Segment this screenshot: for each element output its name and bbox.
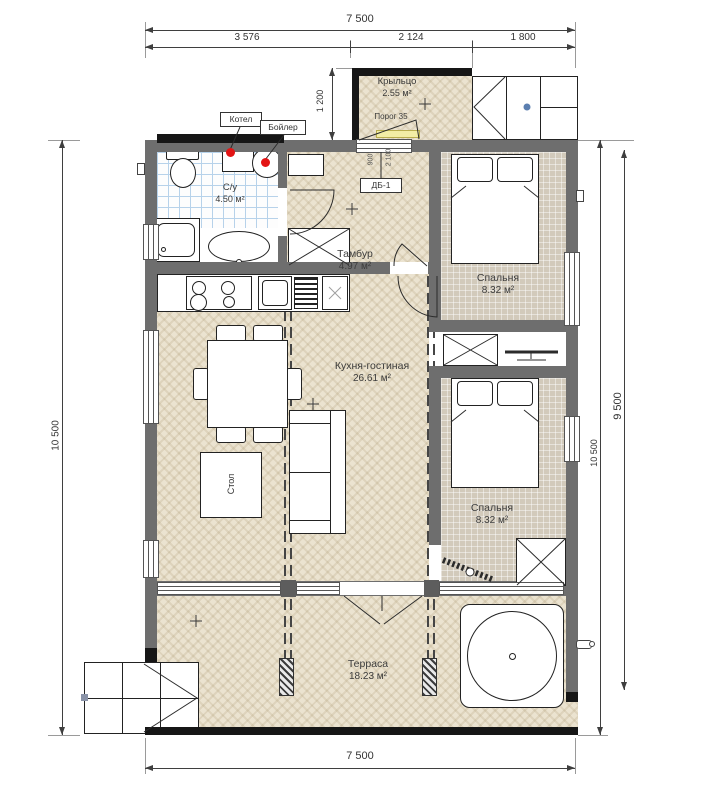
niche-wardrobe (443, 334, 498, 366)
dining-chair (253, 426, 283, 443)
room-name: Тамбур (337, 248, 373, 260)
wall-bath-vestibule (278, 236, 287, 262)
dimension-line-left (62, 140, 63, 735)
shower-drain (161, 247, 166, 252)
dimension-tick (472, 41, 473, 53)
window (564, 252, 580, 326)
hot-tub-jet (509, 653, 516, 660)
wall-post (281, 580, 296, 597)
extension-line (578, 735, 608, 736)
bathtub-oval (208, 231, 270, 262)
door-opening-bedroom2 (429, 545, 441, 581)
stove-burner (190, 294, 207, 311)
floor-plan: Крыльцо 2.55 м² Порог 35 С/у 4.50 м² Там… (0, 0, 703, 794)
entry-door-opening (356, 139, 412, 153)
room-name: С/у (223, 182, 237, 193)
dimension-line-right-inner (600, 140, 601, 735)
wall-vent (137, 163, 145, 175)
porch-stairs (472, 76, 578, 140)
wall-center (429, 378, 441, 545)
dim-label-left: 10 500 (51, 396, 62, 476)
room-label-vestibule: Тамбур 4.97 м² (318, 248, 392, 274)
dim-label-porch-depth: 1 200 (315, 61, 325, 141)
room-name: Крыльцо (378, 76, 417, 87)
room-name: Спальня (471, 502, 513, 514)
terrace-column (279, 658, 294, 696)
room-name: Терраса (348, 658, 388, 670)
room-label-bathroom: С/у 4.50 м² (195, 182, 265, 205)
dim-label-right-outer: 9 500 (612, 366, 624, 446)
extension-line (336, 68, 352, 69)
dimension-line-right-outer (624, 150, 625, 690)
sink-drainer (294, 277, 318, 309)
bed-pillow (457, 381, 493, 406)
dining-chair (216, 426, 246, 443)
wall-band-bathroom (157, 134, 284, 143)
terrace-stairs-mid-line (85, 698, 198, 699)
terrace-glazing (296, 582, 340, 595)
boiler-point (226, 148, 235, 157)
door-tag: ДБ-1 (360, 178, 402, 193)
hot-tub-faucet (576, 640, 592, 649)
wall-vent (576, 190, 584, 202)
room-area: 4.97 м² (318, 261, 392, 274)
toilet-bowl (170, 158, 196, 188)
dim-label-top-total: 7 500 (330, 13, 390, 25)
dim-label-segment-3: 1 800 (493, 32, 553, 43)
bed-pillow (497, 381, 533, 406)
room-label-terrace: Терраса 18.23 м² (328, 658, 408, 684)
porch-stairs-mid-line (540, 107, 578, 108)
room-name: Спальня (477, 272, 519, 284)
room-label-bedroom-top: Спальня 8.32 м² (458, 272, 538, 298)
water-heater-point (261, 158, 270, 167)
window (564, 416, 580, 462)
room-label-kitchen-living: Кухня-гостиная 26.61 м² (322, 360, 422, 386)
room-area: 8.32 м² (458, 285, 538, 298)
dim-label-right-inner: 10 500 (589, 413, 599, 493)
terrace-glazing (157, 582, 281, 595)
wall-center (429, 152, 441, 320)
dining-chair (286, 368, 302, 400)
vestibule-cabinet (288, 154, 324, 176)
terrace-door-opening (340, 582, 424, 595)
wall-niche-top (429, 320, 578, 332)
dimension-line-top-segments (145, 47, 575, 48)
bedroom-wardrobe (516, 538, 566, 586)
bed-pillow (497, 157, 533, 182)
door-opening-living (390, 262, 428, 274)
dim-label-segment-1: 3 576 (217, 32, 277, 43)
window (143, 330, 159, 424)
water-heater-tag: Бойлер (260, 120, 306, 135)
wall-cap (145, 648, 157, 662)
wall-bath-vestibule (278, 152, 287, 188)
dimension-line-bottom (145, 768, 575, 769)
kitchen-cabinet (322, 276, 348, 310)
room-area: 2.55 м² (357, 88, 437, 99)
room-label-porch: Крыльцо 2.55 м² (357, 76, 437, 99)
bed-pillow (457, 157, 493, 182)
dimension-line-porch-depth (332, 68, 333, 140)
room-area: 18.23 м² (328, 671, 408, 684)
wall-niche-bottom (429, 366, 578, 378)
porch-stairs-step-line (506, 77, 507, 139)
stairs-marker (81, 694, 88, 701)
extension-line (578, 140, 634, 141)
dim-label-segment-2: 2 124 (381, 32, 441, 43)
stove-burner (223, 296, 235, 308)
kitchen-sink-basin (262, 280, 288, 306)
dining-table (207, 340, 288, 428)
room-area: 8.32 м² (452, 515, 532, 528)
room-name: Кухня-гостиная (335, 360, 409, 372)
stove-burner (192, 281, 206, 295)
dimension-tick (350, 41, 351, 53)
wall-cap (566, 692, 578, 702)
window (143, 540, 159, 578)
extension-line (575, 22, 576, 68)
room-area: 4.50 м² (195, 194, 265, 205)
stove-burner (221, 281, 235, 295)
dimension-line-top-total (145, 30, 575, 31)
porch-wall-top (352, 68, 472, 76)
terrace-column (422, 658, 437, 696)
sofa-seat (289, 423, 332, 521)
door-opening-bath (279, 188, 286, 236)
room-label-bedroom-bottom: Спальня 8.32 м² (452, 502, 532, 528)
extension-line (575, 738, 576, 774)
sofa-back (330, 410, 346, 534)
threshold-strip (376, 130, 420, 138)
porch-stairs-step-line (540, 77, 541, 139)
coffee-table-label: Стол (226, 444, 236, 524)
extension-line (48, 735, 80, 736)
boiler-tag: Котел (220, 112, 262, 127)
dim-label-bottom: 7 500 (330, 750, 390, 762)
room-area: 26.61 м² (322, 373, 422, 386)
stove (186, 276, 252, 310)
beam-dash-line (284, 276, 286, 695)
wall-post (424, 580, 439, 597)
terrace-edge (145, 727, 578, 735)
window (143, 224, 159, 260)
terrace-glazing (439, 582, 564, 595)
